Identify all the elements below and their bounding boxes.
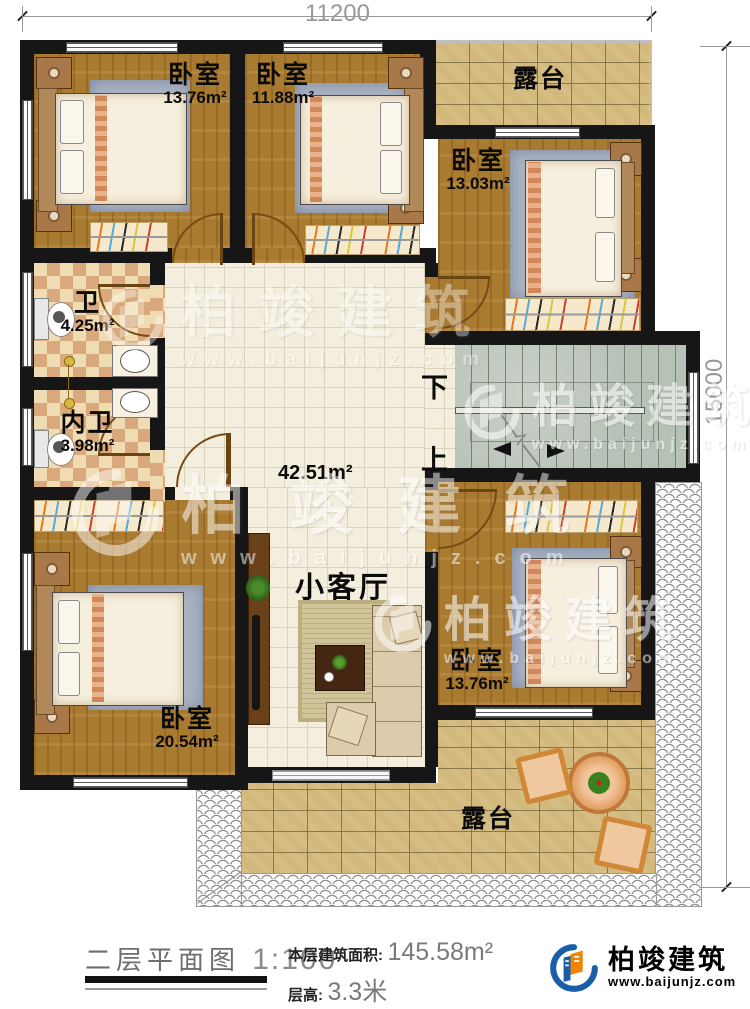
hall-area-label: 42.51m² <box>278 462 353 485</box>
floor-area-label: 本层建筑面积: <box>288 947 383 964</box>
room-name: 露台 <box>438 806 538 833</box>
stair-direction-arrows <box>455 345 686 468</box>
living-room-label: 小客厅 <box>295 564 391 606</box>
bed-pillow <box>595 232 615 282</box>
floor-drain <box>64 398 75 409</box>
bed-pillow <box>58 652 80 696</box>
plan-title-text: 二层平面图 <box>85 945 240 975</box>
dimension-height-label: 15000 <box>701 342 725 442</box>
window <box>22 408 33 466</box>
door-opening <box>150 450 165 502</box>
bed-blanket-stripe <box>95 95 107 201</box>
room-label-bedroom-bottom-left: 卧室 20.54m² <box>132 706 242 751</box>
room-name: 卧室 <box>425 148 531 175</box>
wall-segment <box>436 331 700 345</box>
room-area: 11.88m² <box>228 89 338 107</box>
sink-basin <box>120 391 150 413</box>
brand-block: 柏竣建筑 www.baijunjz.com <box>548 942 736 994</box>
room-name: 卧室 <box>132 706 242 733</box>
room-label-terrace-top: 露台 <box>490 66 590 93</box>
room-name: 卫 <box>55 290 120 317</box>
room-name: 卧室 <box>228 62 338 89</box>
nightstand <box>388 57 424 89</box>
door-leaf <box>438 489 497 492</box>
wall-segment <box>641 482 655 720</box>
room-area: 3.98m² <box>55 437 120 455</box>
dimension-ext <box>700 887 750 888</box>
window <box>22 553 33 651</box>
sink-basin <box>120 349 150 373</box>
door-opening <box>425 277 438 333</box>
brand-name: 柏竣建筑 <box>608 947 736 974</box>
brand-url: www.baijunjz.com <box>608 974 736 989</box>
plant <box>246 575 270 601</box>
brand-logo-icon <box>548 942 600 994</box>
nightstand <box>34 552 70 586</box>
door-opening <box>175 487 230 500</box>
floor-plan-canvas: 卧室 13.76m² 卧室 11.88m² 露台 卧室 13.03m² 卫 4.… <box>0 0 750 1009</box>
room-area: 13.76m² <box>422 675 532 693</box>
stairs-up-label: 上 <box>421 438 448 477</box>
room-area: 13.03m² <box>425 175 531 193</box>
floor-drain <box>64 356 75 367</box>
floor-terrace-bottom-left <box>240 783 438 873</box>
bed-pillow <box>60 100 84 144</box>
window <box>475 707 593 718</box>
window <box>688 372 699 464</box>
room-area: 4.25m² <box>55 317 120 335</box>
wall-segment <box>641 125 655 345</box>
room-label-bathroom: 卫 4.25m² <box>55 290 120 335</box>
door-leaf <box>226 433 231 487</box>
bed-pillow <box>598 566 618 614</box>
drain-pipe-line <box>68 364 69 400</box>
dimension-ext <box>651 6 652 32</box>
sliding-door <box>272 770 390 781</box>
room-name: 内卫 <box>55 410 120 437</box>
bed-pillow <box>595 168 615 218</box>
wardrobe <box>34 500 164 532</box>
dimension-ext <box>700 46 750 47</box>
room-name: 露台 <box>490 66 590 93</box>
dimension-width-label: 11200 <box>305 0 370 28</box>
window <box>73 777 188 788</box>
room-name: 卧室 <box>422 648 532 675</box>
wardrobe <box>90 222 168 252</box>
window <box>283 42 383 53</box>
wardrobe <box>505 298 640 331</box>
door-leaf <box>252 213 255 265</box>
bed-pillow <box>60 150 84 194</box>
nightstand <box>36 57 72 89</box>
floor-height-label: 层高: <box>288 987 323 1004</box>
bed-pillow <box>380 102 402 146</box>
wardrobe <box>505 500 638 533</box>
tv <box>252 615 260 710</box>
bed-blanket-stripe <box>310 96 322 202</box>
bed-pillow <box>58 600 80 644</box>
title-underline-thin <box>85 988 267 990</box>
title-underline-thick <box>85 976 267 983</box>
table-plant <box>332 655 347 670</box>
window <box>22 100 33 200</box>
roof-edge-right <box>655 482 702 907</box>
floor-area-row: 本层建筑面积: 145.58m² <box>288 938 493 967</box>
door-opening <box>425 490 438 552</box>
door-leaf <box>220 213 223 265</box>
bed-pillow <box>598 626 618 674</box>
wardrobe <box>305 225 420 255</box>
window <box>22 272 33 367</box>
bed-blanket-stripe <box>92 594 104 702</box>
floor-area-value: 145.58m² <box>387 938 493 966</box>
room-label-bedroom-bottom-right: 卧室 13.76m² <box>422 648 532 693</box>
roof-edge-left <box>196 788 242 907</box>
table-cup <box>324 672 334 682</box>
room-label-bedroom-right: 卧室 13.03m² <box>425 148 531 193</box>
dimension-ext <box>22 6 23 32</box>
wall-segment <box>425 468 700 482</box>
stairs-down-label: 下 <box>421 366 448 405</box>
window <box>66 42 178 53</box>
door-opening <box>150 285 165 338</box>
door-leaf <box>438 276 490 279</box>
door-leaf <box>98 284 150 287</box>
floor-height-row: 层高: 3.3米 <box>288 972 387 1008</box>
room-area: 20.54m² <box>132 733 242 751</box>
terrace-chair <box>593 815 652 874</box>
floor-height-value: 3.3米 <box>327 978 387 1006</box>
dimension-line-right <box>726 46 727 888</box>
room-label-terrace-bottom: 露台 <box>438 806 538 833</box>
window <box>495 127 580 138</box>
terrace-table-plant <box>588 772 610 794</box>
room-label-inner-bathroom: 内卫 3.98m² <box>55 410 120 455</box>
bed-pillow <box>380 150 402 194</box>
room-label-bedroom-top-mid: 卧室 11.88m² <box>228 62 338 107</box>
roof-edge-bottom <box>240 873 657 907</box>
